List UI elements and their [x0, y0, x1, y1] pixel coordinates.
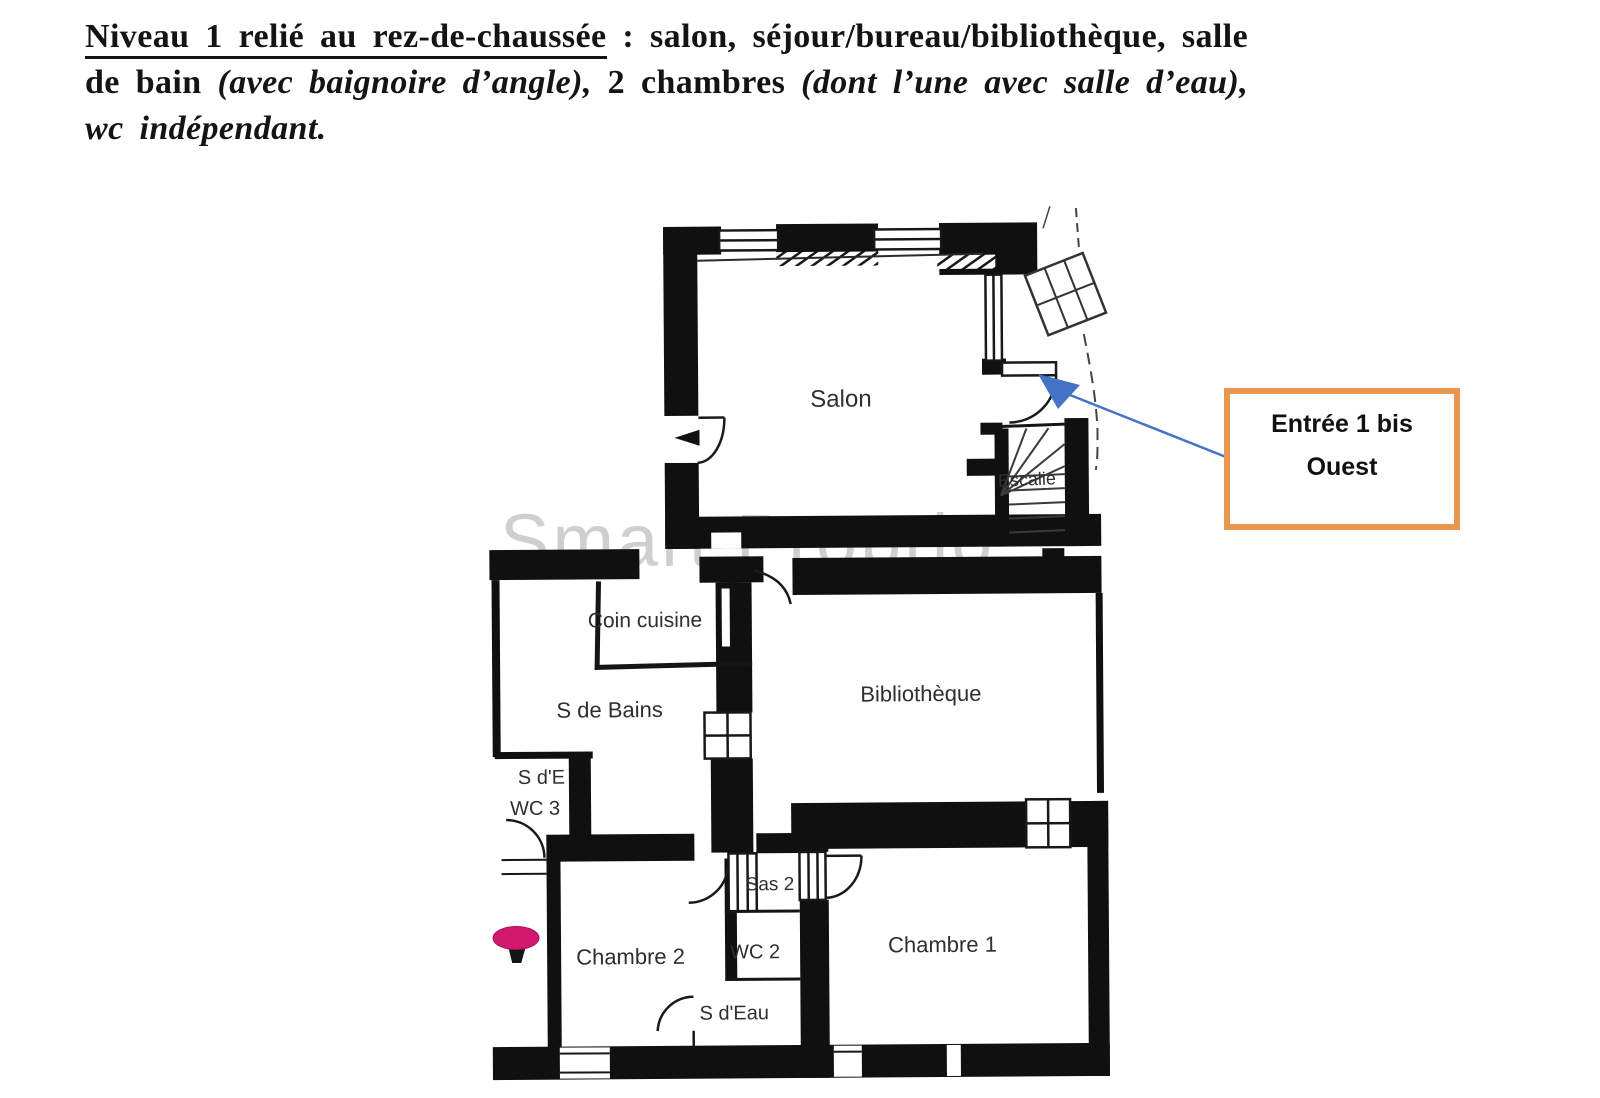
- document-page: Niveau 1 relié au rez-de-chaussée : salo…: [0, 0, 1600, 1098]
- wall-segment: [546, 834, 694, 862]
- wall-slot: [722, 588, 730, 646]
- room-label-wc2: WC 2: [730, 941, 780, 963]
- room-label-salon: Salon: [810, 385, 872, 412]
- door-swing: [825, 856, 861, 898]
- room-label-s-deau: S d'Eau: [699, 1002, 769, 1024]
- entrance-callout-line1: Entrée 1 bis: [1271, 410, 1413, 439]
- wall-segment: [492, 580, 501, 757]
- room-label-wc3: WC 3: [510, 798, 560, 820]
- room-label-sde: S d'E: [518, 767, 565, 789]
- room-label-chambre2: Chambre 2: [576, 944, 685, 970]
- wall-segment: [791, 801, 1026, 849]
- door-leaf: [1002, 362, 1056, 375]
- room-label-escalier: Escalie: [997, 468, 1056, 490]
- room-label-coin-cuisine: Coin cuisine: [588, 609, 703, 633]
- room-label-sas: Sas 2: [746, 874, 795, 895]
- room-label-chambre1: Chambre 1: [888, 932, 997, 958]
- door-swing: [657, 997, 693, 1031]
- wall-segment: [776, 223, 878, 254]
- door-swing: [688, 863, 728, 903]
- window-gap: [834, 1046, 862, 1077]
- wall-segment: [1096, 593, 1104, 793]
- wall-segment: [1064, 418, 1089, 546]
- door-swing: [697, 418, 724, 463]
- room-label-bibliotheque: Bibliothèque: [860, 681, 981, 707]
- wall-segment: [663, 227, 721, 255]
- wall-segment: [716, 582, 753, 712]
- wall-segment: [1087, 801, 1110, 1076]
- wall-segment: [967, 459, 997, 476]
- window-gap: [560, 1047, 610, 1078]
- wall-gap: [711, 532, 741, 548]
- window-line: [993, 275, 994, 361]
- floor-plan-svg: Smart Proprio: [0, 0, 1600, 1098]
- door-hinge: [982, 365, 1002, 374]
- room-labels: Salon Escalie Coin cuisine S de Bains S …: [507, 384, 1060, 1026]
- stair-tread: [1009, 502, 1065, 504]
- room-label-salle-de-bains: S de Bains: [556, 697, 663, 723]
- wall-segment: [663, 229, 698, 416]
- window-gap: [947, 1045, 961, 1076]
- door-jamb-symbol: [799, 852, 825, 900]
- wall-segment: [711, 758, 754, 852]
- wall-segment: [1042, 548, 1064, 558]
- entrance-callout: Entrée 1 bis Ouest: [1224, 388, 1460, 530]
- wc2-partition: [725, 979, 800, 980]
- wall-segment: [792, 556, 1101, 595]
- sketch-dashed-line: [1076, 208, 1079, 252]
- wc2-partition: [725, 911, 800, 912]
- stair-top-line: [998, 424, 1064, 426]
- entrance-callout-line2: Ouest: [1307, 453, 1378, 482]
- hatch-strip: [937, 255, 995, 269]
- sketch-line: [1043, 206, 1050, 228]
- pin-head: [493, 926, 539, 949]
- wall-segment: [489, 549, 639, 580]
- door-swing: [506, 820, 544, 858]
- callout-arrow-line: [1070, 395, 1226, 457]
- callout-arrowhead: [1038, 374, 1080, 409]
- location-pin-icon: [493, 926, 539, 963]
- wall-segment: [546, 859, 561, 1049]
